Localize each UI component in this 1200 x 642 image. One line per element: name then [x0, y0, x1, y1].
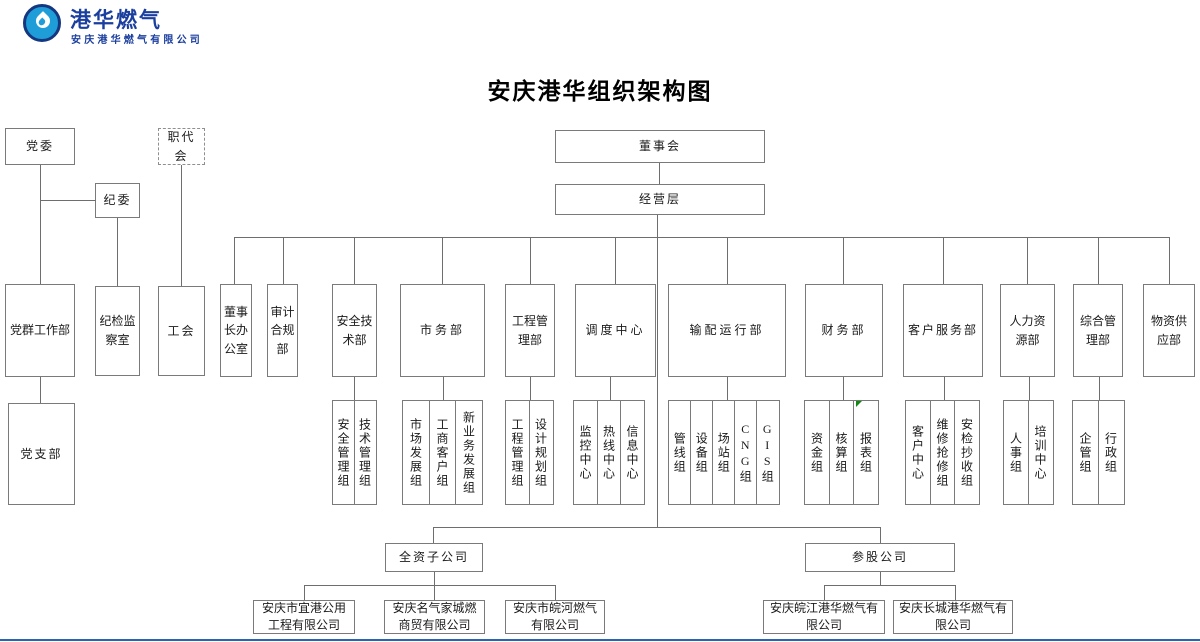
- sub-label: 监控中心: [577, 425, 594, 481]
- subgroup-transmission: 管线组 设备组 场站组 CNG组 GIS组: [668, 400, 780, 505]
- connector: [1029, 377, 1030, 400]
- connector: [1099, 377, 1100, 400]
- connector: [843, 377, 844, 400]
- sub-station-group: 场站组: [712, 400, 736, 505]
- sub-safety-management: 安全管理组: [332, 400, 355, 505]
- sub-funds-group: 资金组: [804, 400, 830, 505]
- sub-hotline-center: 热线中心: [597, 400, 622, 505]
- sub-technology-management: 技术管理组: [354, 400, 377, 505]
- company-mingqijiacheng-trading: 安庆名气家城燃商贸有限公司: [384, 600, 485, 634]
- page-title: 安庆港华组织架构图: [0, 72, 1200, 106]
- connector: [442, 237, 443, 284]
- connector: [434, 572, 435, 585]
- dept-material-supply: 物资供应部: [1143, 284, 1195, 377]
- sub-gis-group: GIS组: [756, 400, 780, 505]
- dept-finance: 财务部: [805, 284, 883, 377]
- company-name: 安庆港华燃气有限公司: [71, 31, 203, 46]
- sub-label: 工商客户组: [434, 418, 451, 488]
- sub-label: 核算组: [833, 432, 850, 474]
- subgroup-finance: 资金组 核算组 报表组: [804, 400, 879, 505]
- sub-customer-center: 客户中心: [905, 400, 931, 505]
- dept-party-mass-work: 党群工作部: [5, 284, 75, 377]
- brand-name: 港华燃气: [70, 4, 162, 34]
- dept-engineering-management: 工程管理部: [505, 284, 555, 377]
- sub-design-planning: 设计规划组: [529, 400, 554, 505]
- dept-safety-technology: 安全技术部: [332, 284, 377, 377]
- sub-label: GIS组: [759, 422, 776, 484]
- subgroup-customer-service: 客户中心 维修抢修组 安检抄收组: [905, 400, 980, 505]
- connector: [40, 377, 41, 403]
- flame-outer-shape: [33, 11, 53, 31]
- connector: [1169, 237, 1170, 284]
- connector: [727, 377, 728, 400]
- dept-transmission-distribution: 输配运行部: [668, 284, 786, 377]
- sub-label: 行政组: [1103, 432, 1120, 474]
- connector: [610, 377, 611, 400]
- sub-monitoring-center: 监控中心: [573, 400, 598, 505]
- company-yigang-public-engineering: 安庆市宜港公用工程有限公司: [253, 600, 355, 634]
- sub-commercial-customers: 工商客户组: [429, 400, 457, 505]
- dept-dispatch-center: 调度中心: [575, 284, 656, 377]
- subgroup-engineering: 工程管理组 设计规划组: [505, 400, 554, 505]
- sub-label: 人事组: [1008, 432, 1025, 474]
- connector: [117, 218, 118, 286]
- subgroup-dispatch: 监控中心 热线中心 信息中心: [573, 400, 645, 505]
- connector: [433, 527, 880, 528]
- subgroup-safety: 安全管理组 技术管理组: [332, 400, 377, 505]
- sub-label: 场站组: [715, 432, 732, 474]
- sub-label: 设备组: [693, 432, 710, 474]
- box-discipline-committee: 纪委: [95, 183, 140, 218]
- sub-training-center: 培训中心: [1028, 400, 1054, 505]
- connector: [530, 377, 531, 400]
- sub-label: 技术管理组: [357, 418, 374, 488]
- connector: [434, 585, 435, 600]
- sub-equipment-group: 设备组: [690, 400, 714, 505]
- connector: [943, 237, 944, 284]
- sub-label: 信息中心: [624, 425, 641, 481]
- connector: [354, 377, 355, 400]
- connector: [354, 237, 355, 284]
- connector: [727, 237, 728, 284]
- sub-new-business-development: 新业务发展组: [455, 400, 483, 505]
- dept-discipline-inspection-office: 纪检监察室: [95, 286, 140, 376]
- connector: [304, 585, 305, 600]
- sub-label: 资金组: [809, 432, 826, 474]
- subgroup-general-management: 企管组 行政组: [1072, 400, 1125, 505]
- sub-label: 设计规划组: [533, 418, 550, 488]
- dept-general-management: 综合管理部: [1073, 284, 1123, 377]
- box-board-of-directors: 董事会: [555, 130, 765, 163]
- flame-inner-shape: [37, 17, 46, 26]
- dept-human-resources: 人力资源部: [1000, 284, 1055, 377]
- sub-label: 报表组: [858, 432, 875, 474]
- sub-label: 市场发展组: [408, 418, 425, 488]
- sub-party-branch: 党支部: [8, 403, 75, 505]
- dept-labor-union: 工会: [158, 286, 205, 376]
- box-management-layer: 经营层: [555, 184, 765, 215]
- connector: [843, 237, 844, 284]
- dept-customer-service: 客户服务部: [903, 284, 983, 377]
- box-workers-congress: 职代会: [158, 128, 205, 165]
- green-corner-marker: [856, 401, 862, 407]
- connector: [615, 237, 616, 284]
- connector: [40, 165, 41, 284]
- connector: [944, 377, 945, 400]
- sub-market-development: 市场发展组: [402, 400, 430, 505]
- sub-engineering-management: 工程管理组: [505, 400, 530, 505]
- connector: [659, 163, 660, 184]
- box-wholly-owned-subsidiaries: 全资子公司: [385, 543, 483, 572]
- connector: [555, 585, 556, 600]
- connector: [955, 585, 956, 600]
- sub-label: 安全管理组: [335, 418, 352, 488]
- org-chart-canvas: 港华燃气 安庆港华燃气有限公司 安庆港华组织架构图 党委 职代会 纪委 董事会 …: [0, 0, 1200, 642]
- sub-repair-rescue-group: 维修抢修组: [930, 400, 956, 505]
- sub-reporting-group: 报表组: [853, 400, 879, 505]
- subgroup-hr: 人事组 培训中心: [1003, 400, 1054, 505]
- connector: [1027, 237, 1028, 284]
- connector: [880, 527, 881, 543]
- sub-pipeline-group: 管线组: [668, 400, 692, 505]
- bottom-blue-rule: [0, 639, 1200, 641]
- connector: [443, 377, 444, 400]
- sub-enterprise-management-group: 企管组: [1072, 400, 1099, 505]
- sub-label: 工程管理组: [509, 418, 526, 488]
- sub-label: 培训中心: [1032, 425, 1049, 481]
- sub-inspection-meter-reading-group: 安检抄收组: [954, 400, 980, 505]
- sub-label: 热线中心: [601, 425, 618, 481]
- connector: [40, 200, 96, 201]
- box-equity-companies: 参股公司: [805, 543, 955, 572]
- connector: [304, 585, 555, 586]
- connector: [283, 237, 284, 284]
- connector: [181, 165, 182, 286]
- sub-label: CNG组: [737, 422, 754, 484]
- sub-label: 管线组: [671, 432, 688, 474]
- connector: [824, 585, 825, 600]
- connector: [824, 585, 955, 586]
- box-party-committee: 党委: [5, 128, 75, 165]
- dept-chairman-office: 董事长办公室: [220, 284, 252, 377]
- sub-cng-group: CNG组: [734, 400, 758, 505]
- sub-information-center: 信息中心: [620, 400, 645, 505]
- sub-label: 企管组: [1077, 432, 1094, 474]
- connector: [433, 527, 434, 543]
- towngas-flame-icon: [23, 4, 61, 42]
- dept-audit-compliance: 审计合规部: [267, 284, 298, 377]
- company-changcheng-towngas: 安庆长城港华燃气有限公司: [893, 600, 1013, 634]
- connector: [530, 237, 531, 284]
- company-wanhe-gas: 安庆市皖河燃气有限公司: [505, 600, 605, 634]
- connector: [657, 215, 658, 527]
- sub-label: 客户中心: [910, 425, 927, 481]
- subgroup-marketing: 市场发展组 工商客户组 新业务发展组: [402, 400, 483, 505]
- sub-label: 新业务发展组: [461, 411, 478, 495]
- connector: [1098, 237, 1099, 284]
- connector: [234, 237, 235, 284]
- sub-accounting-group: 核算组: [829, 400, 855, 505]
- connector: [234, 237, 1169, 238]
- dept-marketing: 市务部: [400, 284, 485, 377]
- sub-label: 安检抄收组: [959, 418, 976, 488]
- company-wanjiang-towngas: 安庆皖江港华燃气有限公司: [763, 600, 885, 634]
- connector: [880, 572, 881, 585]
- sub-personnel-group: 人事组: [1003, 400, 1029, 505]
- sub-label: 维修抢修组: [934, 418, 951, 488]
- sub-administration-group: 行政组: [1098, 400, 1125, 505]
